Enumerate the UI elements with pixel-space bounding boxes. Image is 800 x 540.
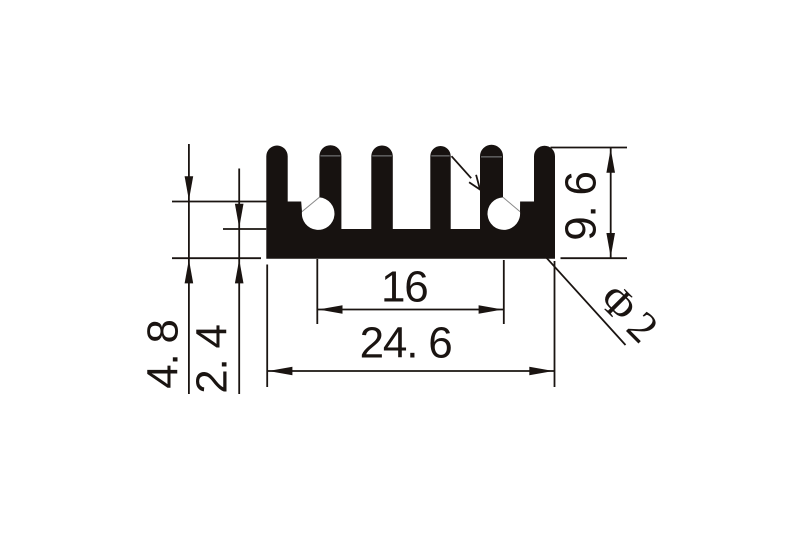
svg-text:24. 6: 24. 6 (360, 319, 452, 368)
svg-text:Φ2: Φ2 (590, 274, 673, 357)
svg-text:4. 8: 4. 8 (139, 320, 188, 389)
svg-text:16: 16 (381, 263, 428, 312)
svg-text:9. 6: 9. 6 (557, 172, 606, 241)
svg-text:2. 4: 2. 4 (187, 324, 236, 393)
